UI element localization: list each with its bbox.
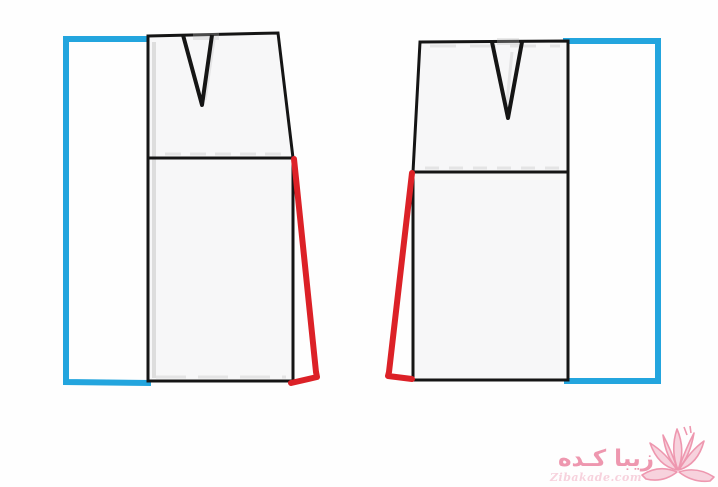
left-red-alteration-line [291, 159, 317, 383]
right-pattern-piece [388, 38, 658, 381]
lotus-flower-icon [639, 424, 717, 486]
watermark: زیبا کـده Zibakade.com [546, 421, 718, 487]
right-blue-guide-line [566, 41, 658, 381]
lotus-sparkle-2 [690, 426, 691, 433]
pattern-drawing [0, 0, 718, 487]
lotus-sparkles [684, 426, 691, 435]
skirt-pattern-diagram: زیبا کـده Zibakade.com [0, 0, 718, 487]
left-pattern-piece [66, 33, 317, 383]
left-skirt-panel-outline [148, 33, 293, 381]
right-dart-top-smudge [497, 38, 519, 45]
right-red-alteration-line [388, 173, 412, 379]
lotus-leaf-left [642, 469, 677, 480]
left-blue-guide-line [66, 39, 150, 383]
watermark-domain-text: Zibakade.com [550, 472, 642, 483]
lotus-leaf-right [679, 470, 714, 481]
lotus-sparkle-1 [684, 427, 687, 435]
right-skirt-panel-outline [413, 41, 568, 380]
left-dart-top-smudge [193, 33, 219, 40]
lotus-petals [642, 429, 714, 481]
